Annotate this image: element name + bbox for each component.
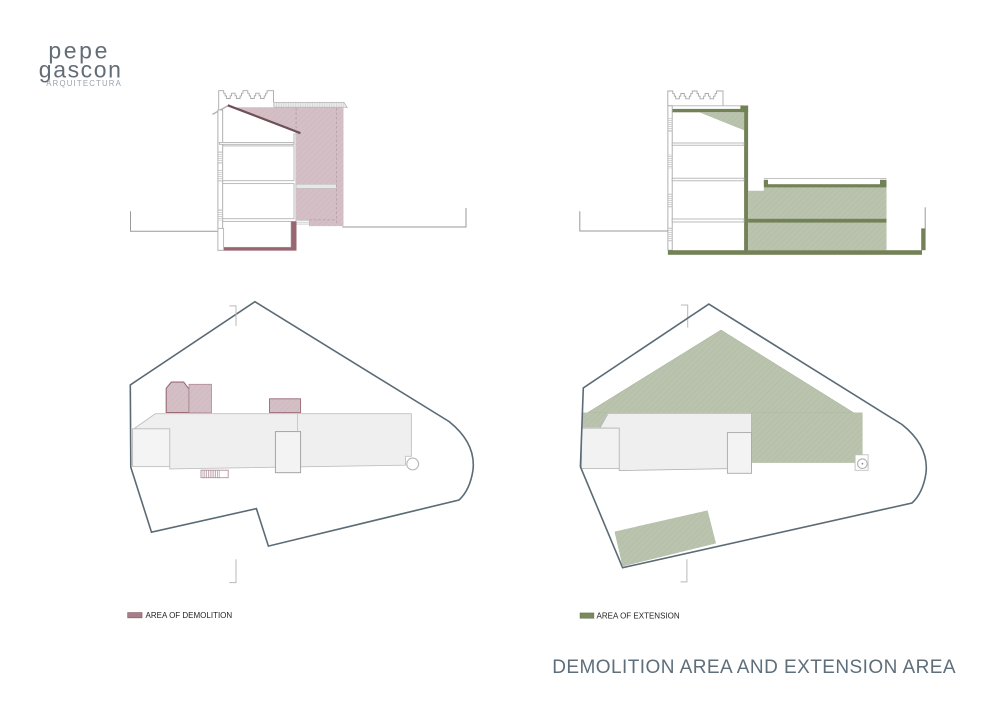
svg-text:AREA OF DEMOLITION: AREA OF DEMOLITION — [146, 611, 233, 620]
svg-text:AREA OF EXTENSION: AREA OF EXTENSION — [597, 611, 680, 620]
svg-text:DEMOLITION AREA AND EXTENSION: DEMOLITION AREA AND EXTENSION AREA — [552, 657, 956, 678]
svg-text:ARQUITECTURA: ARQUITECTURA — [46, 79, 122, 88]
